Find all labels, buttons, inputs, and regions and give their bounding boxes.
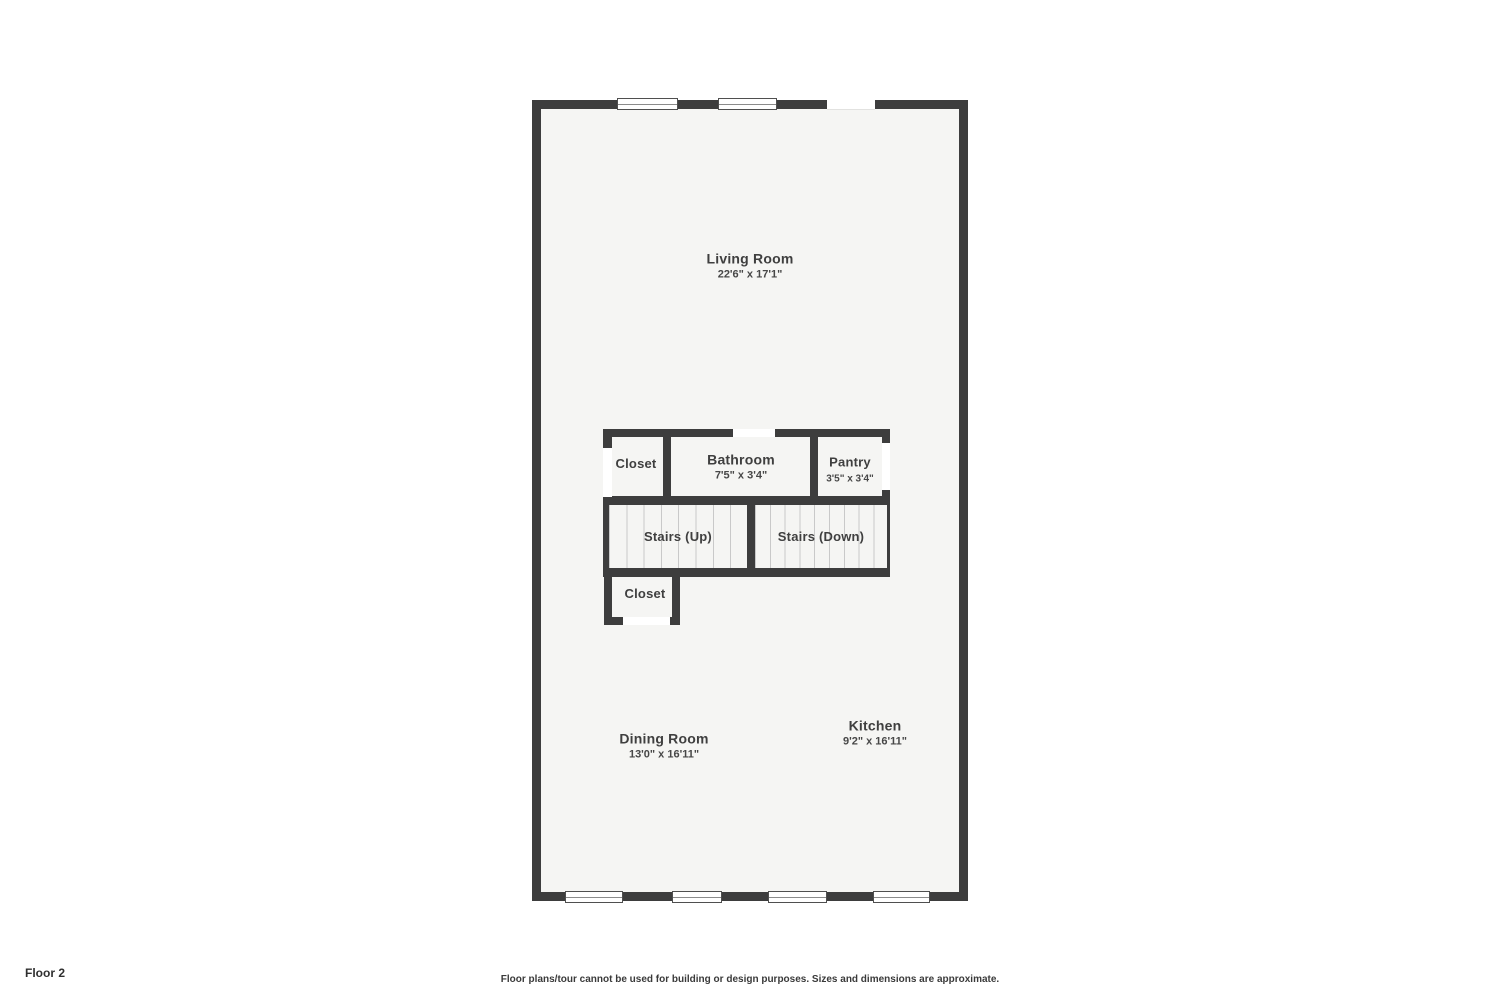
dining-room-label: Dining Room 13'0" x 16'11" [619, 730, 708, 763]
bathroom-label: Bathroom 7'5" x 3'4" [707, 451, 775, 484]
room-dimensions: 9'2" x 16'11" [843, 735, 907, 750]
floorplan-canvas: Living Room 22'6" x 17'1" Closet Bathroo… [0, 0, 1500, 1000]
window-top-1 [617, 98, 678, 110]
kitchen-label: Kitchen 9'2" x 16'11" [843, 717, 907, 750]
stairs-up-label: Stairs (Up) [644, 528, 712, 546]
room-name: Stairs (Down) [778, 528, 864, 546]
closet-lower-label: Closet [625, 585, 666, 603]
room-name: Stairs (Up) [644, 528, 712, 546]
stairs-down-label: Stairs (Down) [778, 528, 864, 546]
closet-upper-door-opening [603, 448, 612, 497]
bathroom-door-opening [733, 429, 775, 437]
room-dimensions: 7'5" x 3'4" [707, 469, 775, 484]
room-name: Dining Room [619, 730, 708, 748]
window-top-2 [718, 98, 777, 110]
room-name: Pantry [826, 454, 874, 472]
room-dimensions: 3'5" x 3'4" [826, 472, 874, 487]
disclaimer-text: Floor plans/tour cannot be used for buil… [0, 974, 1500, 985]
room-dimensions: 13'0" x 16'11" [619, 748, 708, 763]
pantry-door-opening [882, 443, 890, 490]
room-name: Living Room [707, 250, 794, 268]
window-bottom-4 [873, 891, 930, 903]
room-name: Kitchen [843, 717, 907, 735]
window-bottom-3 [768, 891, 827, 903]
room-dimensions: 22'6" x 17'1" [707, 268, 794, 283]
room-name: Closet [625, 585, 666, 603]
closet-lower-door-opening [623, 617, 670, 625]
room-name: Bathroom [707, 451, 775, 469]
wall-opening-top [827, 100, 875, 110]
window-bottom-2 [672, 891, 722, 903]
closet-upper-label: Closet [616, 455, 657, 473]
living-room-label: Living Room 22'6" x 17'1" [707, 250, 794, 283]
pantry-label: Pantry 3'5" x 3'4" [826, 454, 874, 487]
room-name: Closet [616, 455, 657, 473]
window-bottom-1 [565, 891, 623, 903]
